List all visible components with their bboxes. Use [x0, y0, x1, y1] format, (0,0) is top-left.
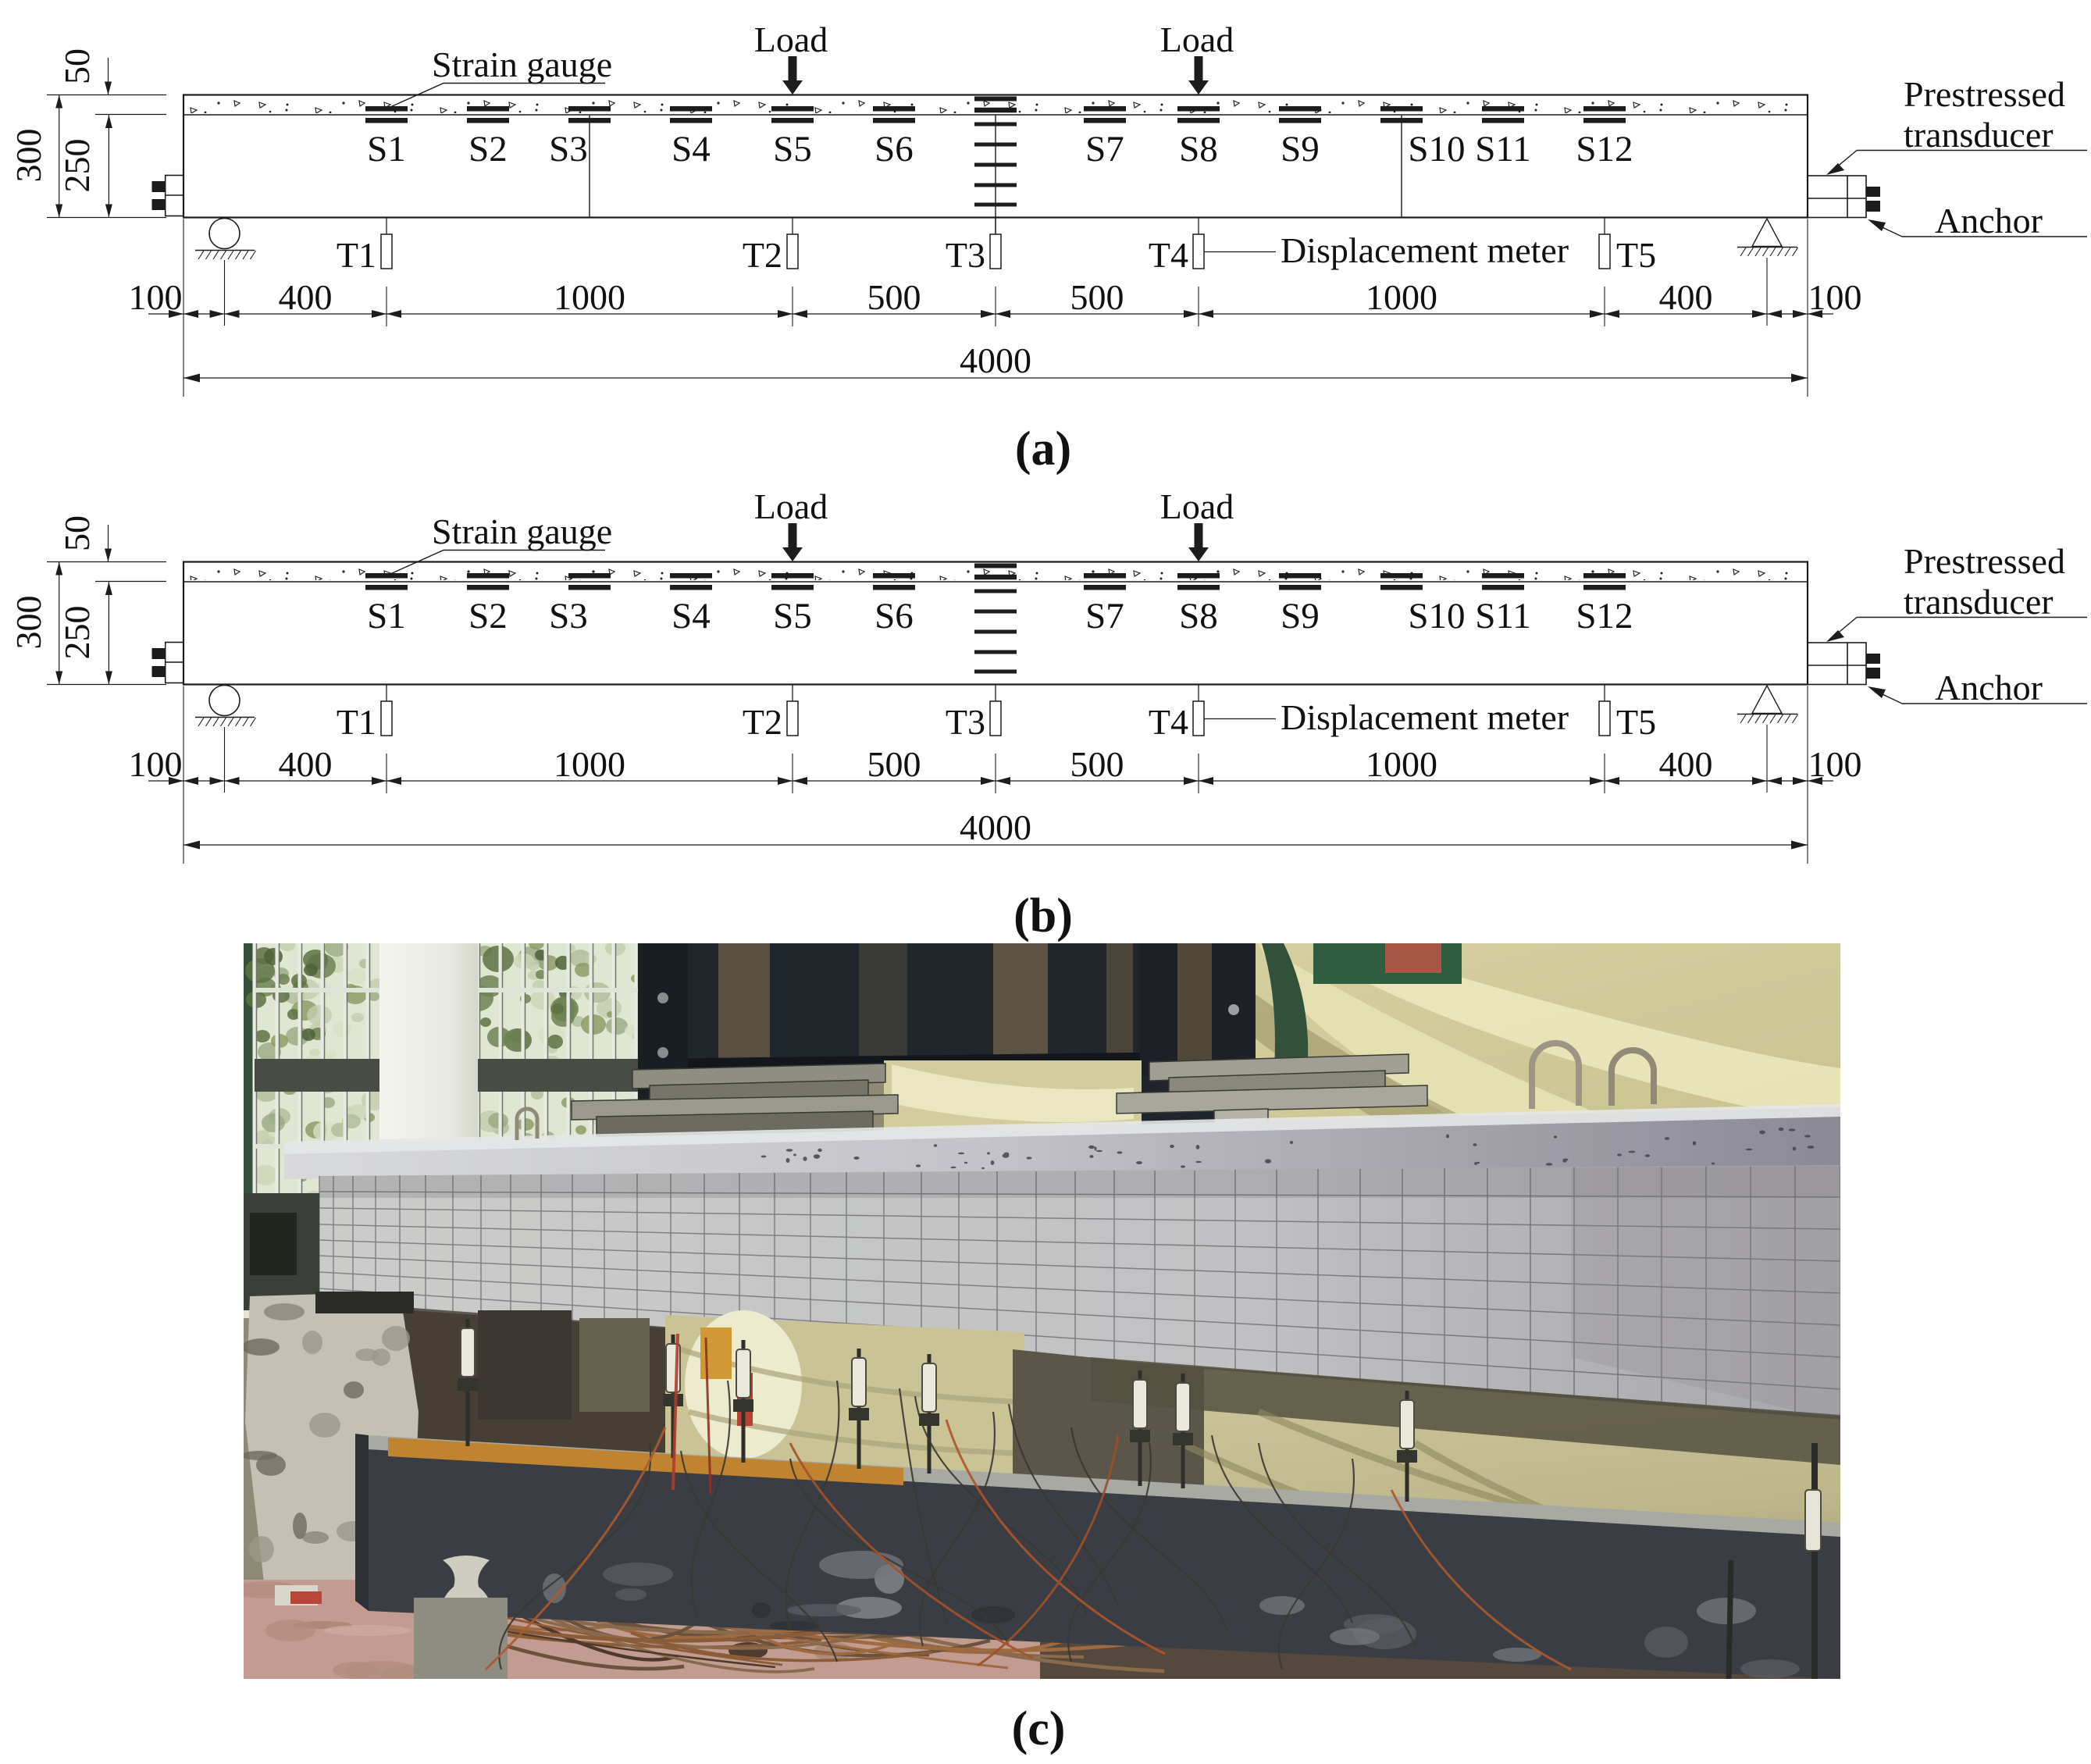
- svg-text:50: 50: [57, 48, 97, 84]
- svg-text:S1: S1: [367, 129, 406, 169]
- svg-text:S11: S11: [1475, 596, 1530, 636]
- svg-text:500: 500: [1070, 744, 1124, 784]
- svg-text:transducer: transducer: [1904, 582, 2054, 622]
- svg-text:T3: T3: [946, 235, 985, 275]
- svg-text:50: 50: [57, 515, 97, 551]
- svg-text:transducer: transducer: [1904, 115, 2054, 155]
- svg-text:1000: 1000: [554, 744, 625, 784]
- svg-text:S12: S12: [1576, 596, 1633, 636]
- svg-text:Prestressed: Prestressed: [1904, 74, 2065, 114]
- svg-text:400: 400: [1659, 744, 1713, 784]
- svg-text:S8: S8: [1179, 596, 1218, 636]
- svg-text:T5: T5: [1616, 235, 1656, 275]
- svg-text:4000: 4000: [960, 340, 1031, 380]
- svg-text:300: 300: [9, 129, 48, 183]
- svg-text:250: 250: [57, 606, 97, 660]
- svg-text:T5: T5: [1616, 702, 1656, 742]
- svg-text:1000: 1000: [1366, 744, 1437, 784]
- svg-text:S11: S11: [1475, 129, 1530, 169]
- svg-text:(a): (a): [1015, 422, 1071, 476]
- svg-text:Anchor: Anchor: [1935, 201, 2043, 241]
- svg-text:400: 400: [279, 277, 333, 317]
- svg-text:300: 300: [9, 596, 48, 650]
- svg-text:Displacement meter: Displacement meter: [1281, 230, 1569, 270]
- svg-text:Load: Load: [1160, 486, 1234, 526]
- svg-text:T1: T1: [337, 702, 376, 742]
- svg-text:Prestressed: Prestressed: [1904, 541, 2065, 581]
- svg-text:S5: S5: [773, 129, 812, 169]
- svg-text:100: 100: [1808, 744, 1862, 784]
- svg-text:100: 100: [129, 744, 183, 784]
- svg-text:1000: 1000: [1366, 277, 1437, 317]
- svg-text:Load: Load: [754, 20, 828, 59]
- svg-text:S8: S8: [1179, 129, 1218, 169]
- svg-text:S2: S2: [468, 129, 508, 169]
- svg-text:T2: T2: [743, 235, 782, 275]
- svg-text:Strain gauge: Strain gauge: [432, 45, 612, 84]
- svg-text:T4: T4: [1149, 702, 1188, 742]
- svg-text:S9: S9: [1281, 129, 1320, 169]
- svg-text:400: 400: [1659, 277, 1713, 317]
- svg-text:S4: S4: [671, 129, 711, 169]
- svg-text:T2: T2: [743, 702, 782, 742]
- svg-text:100: 100: [1808, 277, 1862, 317]
- svg-text:S10: S10: [1408, 129, 1465, 169]
- svg-text:500: 500: [867, 277, 921, 317]
- svg-text:S4: S4: [671, 596, 711, 636]
- svg-text:100: 100: [129, 277, 183, 317]
- svg-text:Displacement meter: Displacement meter: [1281, 697, 1569, 737]
- svg-text:S1: S1: [367, 596, 406, 636]
- svg-text:S2: S2: [468, 596, 508, 636]
- svg-text:(b): (b): [1013, 889, 1073, 943]
- svg-text:500: 500: [1070, 277, 1124, 317]
- svg-text:S7: S7: [1085, 129, 1124, 169]
- svg-text:Load: Load: [754, 486, 828, 526]
- svg-text:500: 500: [867, 744, 921, 784]
- svg-text:S5: S5: [773, 596, 812, 636]
- svg-text:S7: S7: [1085, 596, 1124, 636]
- svg-text:T4: T4: [1149, 235, 1188, 275]
- svg-text:4000: 4000: [960, 807, 1031, 847]
- svg-text:S9: S9: [1281, 596, 1320, 636]
- svg-text:S3: S3: [549, 596, 588, 636]
- svg-text:S6: S6: [875, 129, 914, 169]
- svg-text:Strain gauge: Strain gauge: [432, 511, 612, 551]
- svg-text:250: 250: [57, 139, 97, 193]
- svg-text:S6: S6: [875, 596, 914, 636]
- svg-text:S10: S10: [1408, 596, 1465, 636]
- svg-text:Load: Load: [1160, 20, 1234, 59]
- svg-text:S12: S12: [1576, 129, 1633, 169]
- svg-text:400: 400: [279, 744, 333, 784]
- svg-text:1000: 1000: [554, 277, 625, 317]
- svg-text:S3: S3: [549, 129, 588, 169]
- svg-text:Anchor: Anchor: [1935, 668, 2043, 707]
- svg-text:T3: T3: [946, 702, 985, 742]
- svg-text:(c): (c): [1012, 1702, 1066, 1755]
- svg-text:T1: T1: [337, 235, 376, 275]
